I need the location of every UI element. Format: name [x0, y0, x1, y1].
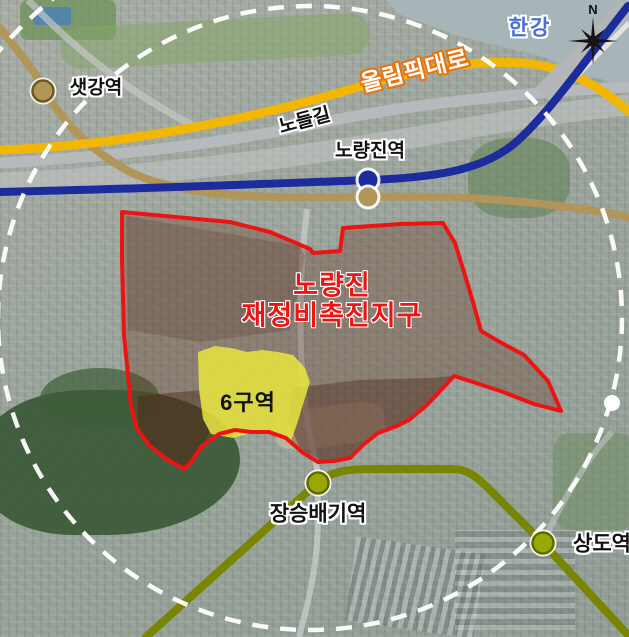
- line7-path: [146, 469, 629, 637]
- jangseungbaegi-station-marker: [305, 470, 332, 497]
- sangdo-station-marker: [530, 530, 557, 557]
- district-title-line2: 재정비촉진지구: [242, 301, 423, 331]
- radius-ring-node: [604, 395, 620, 411]
- han-river-label: 한강: [509, 16, 552, 39]
- olympic-expressway-path: [0, 62, 629, 150]
- station-label-sangdo: 상도역: [573, 532, 629, 555]
- station-label-saetgang: 샛강역: [70, 79, 122, 100]
- district-title: 노량진 재정비촉진지구: [242, 271, 423, 330]
- zone6-label: 6구역: [220, 391, 276, 415]
- station-label-jangseungbaegi: 장승배기역: [270, 502, 367, 525]
- district-title-line1: 노량진: [242, 271, 423, 301]
- district-dark-patch: [288, 376, 452, 460]
- satellite-map: 샛강역 노량진역 장승배기역 상도역 한강 올림픽대로 노들길 노량진 재정비촉…: [0, 0, 629, 637]
- compass-north-label: N: [588, 3, 597, 17]
- sangdo-road-path: [543, 432, 612, 543]
- station-label-noryangjin: 노량진역: [335, 142, 405, 163]
- saetgang-station-marker: [30, 78, 57, 105]
- noryangjin-station-marker-line9: [356, 185, 381, 210]
- district-dark-patch: [138, 390, 209, 468]
